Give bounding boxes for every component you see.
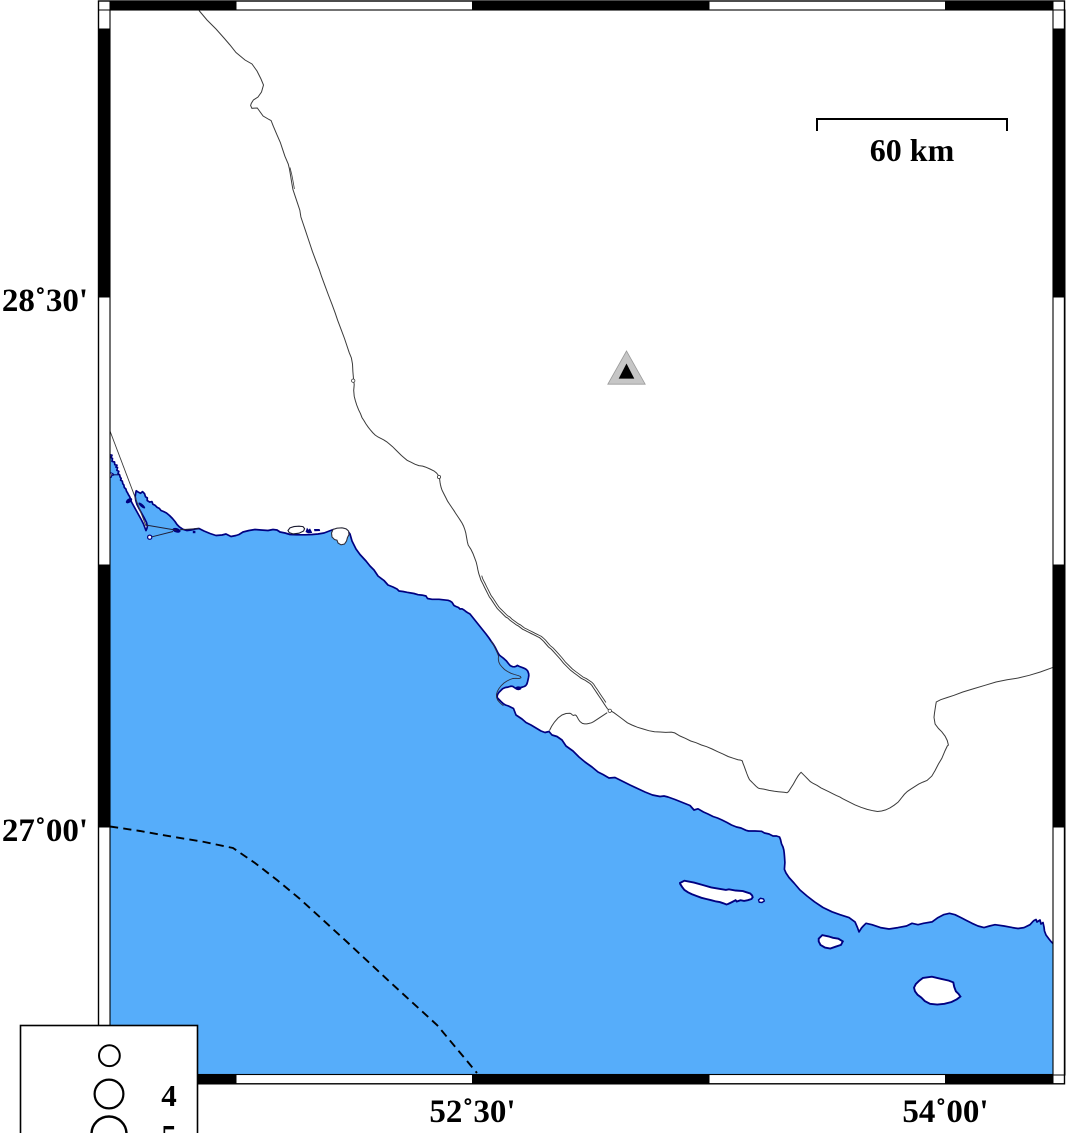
svg-text:5: 5 <box>161 1118 177 1133</box>
svg-text:60 km: 60 km <box>870 132 955 168</box>
svg-text:28˚30': 28˚30' <box>2 283 88 319</box>
svg-text:54˚00': 54˚00' <box>902 1094 988 1130</box>
svg-text:52˚30': 52˚30' <box>429 1094 515 1130</box>
svg-text:27˚00': 27˚00' <box>2 813 88 849</box>
svg-text:4: 4 <box>161 1078 177 1113</box>
